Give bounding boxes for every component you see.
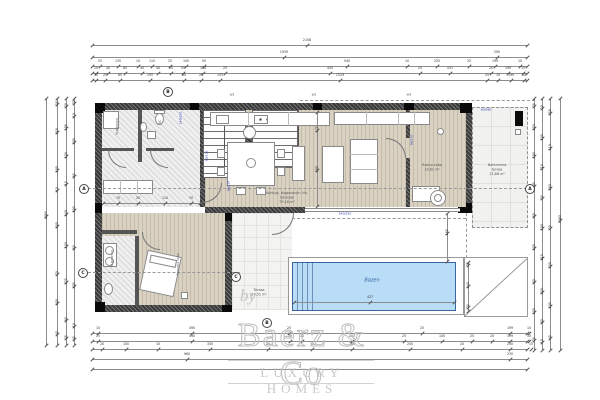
counter-divider (288, 112, 289, 126)
dimension-label: 20 (64, 95, 67, 115)
dimension-tick (558, 348, 562, 352)
dimension-label: 250 (548, 102, 551, 122)
column (222, 305, 232, 312)
dimension-line (92, 369, 527, 370)
dimension-label: 290 (487, 51, 507, 54)
opening-code-label: W2 (302, 94, 326, 97)
dimension-label: 10 (540, 331, 543, 351)
section-marker-c: C (231, 272, 241, 282)
dimension-label: 25 (462, 335, 482, 338)
dimension-label: 25 (394, 335, 414, 338)
dimension-label: 500 (55, 215, 58, 235)
dimension-label: 25 (532, 95, 535, 115)
pool-step-line (307, 262, 308, 311)
swimming-pool (292, 262, 456, 311)
dimension-line (294, 302, 454, 303)
opening-code-label: 80/210 (228, 174, 231, 198)
dimension-label: 190 (55, 159, 58, 179)
terrace-edge-dashed (292, 218, 466, 219)
column (95, 302, 105, 312)
dimension-label: 203 (342, 335, 362, 338)
wall-east (466, 103, 472, 213)
dimension-label: 255 (427, 60, 447, 63)
kitchen-sink (216, 115, 229, 124)
dimension-label: 1939 (274, 51, 294, 54)
dimension-label: 25 (90, 60, 110, 63)
dimension-label: 240 (64, 203, 67, 223)
dimension-label: 175 (315, 119, 318, 139)
dimension-label: 1060 (558, 209, 561, 229)
dimension-label: 150 (116, 343, 136, 346)
dimension-label: 100 (432, 335, 452, 338)
dimension-label: 680 (548, 177, 551, 197)
room-label: Terasa24,51 m² (247, 288, 272, 297)
dimension-label: 25 (548, 217, 551, 237)
dimension-label: 110 (548, 137, 551, 157)
dimension-label: 445 (320, 67, 340, 70)
dimension-label: 490 (182, 335, 202, 338)
dimension-label: 540 (337, 60, 357, 63)
chair (277, 149, 285, 158)
roof-dashed-line (300, 100, 535, 101)
sofa (350, 139, 378, 184)
sofa-cushion-line (350, 154, 378, 155)
dimension-label: 20 (452, 343, 472, 346)
dimension-label: 70 (181, 197, 201, 200)
dimension-line (92, 80, 527, 81)
dimension-tick (525, 367, 529, 371)
dimension-label: 25 (258, 343, 278, 346)
bidet (140, 122, 147, 132)
section-marker-b: B (163, 87, 173, 97)
sofa (322, 146, 344, 183)
dimension-label: 100 (540, 217, 543, 237)
opening-code-label: 90/210 (411, 128, 414, 152)
dimension-label: 960 (177, 353, 197, 356)
nightstand (181, 292, 188, 299)
dimension-label: 10 (55, 179, 58, 199)
dimension-label: 25 (466, 254, 469, 274)
dimension-label: 25 (532, 329, 535, 349)
column (225, 213, 232, 221)
column (404, 103, 414, 110)
hall-cabinet (103, 180, 153, 194)
section-marker-a: A (79, 184, 89, 194)
cabinet-divider (398, 112, 399, 125)
dimension-label: 198 (64, 117, 67, 137)
dimension-label: 330 (200, 343, 220, 346)
cabinet-divider (414, 112, 415, 125)
dimension-label: 10 (292, 335, 312, 338)
dimension-label: 25 (215, 67, 235, 70)
dimension-line (92, 45, 527, 46)
dimension-label: 290 (315, 159, 318, 179)
dimension-label: 2108 (297, 39, 317, 42)
dimension-label: 25 (64, 327, 67, 347)
dimension-label: 500 (532, 237, 535, 257)
dimension-label: 405 (72, 275, 75, 295)
dimension-label: 490 (182, 327, 202, 330)
terrace-accessory (515, 129, 521, 135)
dimension-label: 710 (540, 157, 543, 177)
dimension-label: 10 (397, 60, 417, 63)
cabinet-divider (120, 180, 121, 194)
sofa-cushion-line (350, 169, 378, 170)
watermark-rule-top (228, 360, 374, 361)
section-marker-b: B (262, 318, 272, 328)
pool-step-line (312, 262, 313, 311)
dimension-label: 55 (173, 67, 193, 70)
dimension-label: 15 (513, 67, 533, 70)
dimension-label: 130 (64, 235, 67, 255)
dimension-label: 25 (540, 187, 543, 207)
kitchen-island (292, 146, 305, 181)
pendant-lamp (243, 126, 256, 139)
dimension-label: 400 (532, 301, 535, 321)
dimension-tick (525, 357, 529, 361)
dimension-label: 110 (142, 60, 162, 63)
dimension-label: 100 (176, 60, 196, 63)
dimension-label: 230 (500, 343, 520, 346)
dimension-tick (44, 343, 48, 347)
dimension-label: 25 (466, 296, 469, 316)
pool-step-line (297, 262, 298, 311)
pool-step-line (302, 262, 303, 311)
dimension-label: 199 (485, 60, 505, 63)
dimension-label: 550 (548, 255, 551, 275)
dimension-label: 25 (459, 60, 479, 63)
dimension-label: 15 (521, 343, 541, 346)
dimension-label: 150 (540, 127, 543, 147)
counter-divider (248, 112, 249, 126)
opening-code-label: W1 (220, 94, 244, 97)
room-label: Radna soba13,81 m² (417, 163, 447, 172)
wall-south-wing (95, 305, 232, 312)
dimension-label: 70 (55, 263, 58, 283)
dimension-label: 60 (110, 74, 130, 77)
room-label-vertical: Kupaonica (115, 114, 118, 138)
watermark-rule-bottom (228, 383, 374, 384)
section-marker-c: C (78, 268, 88, 278)
dimension-label: 300 (540, 281, 543, 301)
dimension-label: 400 (55, 292, 58, 312)
washbasin (147, 131, 156, 139)
column (458, 207, 472, 213)
dimension-label: 60 (64, 309, 67, 329)
room-label: Kuhinja, blagovanje i dn. boravak79,18 m… (262, 191, 312, 204)
dimension-label: 10 (148, 343, 168, 346)
section-line-a (88, 188, 532, 189)
wall-lower-bath-top (102, 230, 137, 234)
dimension-label: 155 (210, 74, 230, 77)
window-south-glazing (305, 208, 460, 212)
dimension-label: 10 (72, 105, 75, 125)
dimension-label: 150 (193, 67, 213, 70)
dimension-label: 20 (540, 97, 543, 117)
dimension-label: 10 (88, 327, 108, 330)
dimension-label: 20 (128, 197, 148, 200)
dimension-label: 15 (64, 173, 67, 193)
dimension-label: 427 (360, 296, 380, 299)
dimension-label: 10 (514, 74, 534, 77)
dimension-label: 255 (140, 74, 160, 77)
dimension-label: 250 (400, 343, 420, 346)
dimension-label: 210 (540, 247, 543, 267)
floor-plan-canvas: by Baerz & Co LUXURY HOMES 2108193929025… (0, 0, 600, 400)
section-marker-a: A (525, 184, 535, 194)
dimension-label: 199 (500, 327, 520, 330)
column (190, 103, 199, 110)
wall-north (95, 103, 472, 110)
room-label: Bazen (357, 277, 387, 284)
wall-bedroom-east (225, 213, 232, 312)
dimension-label: 20 (92, 343, 112, 346)
table-centerpiece (246, 158, 256, 168)
cabinet-divider (137, 180, 138, 194)
dimension-tick (548, 348, 552, 352)
wall-lower-bath-partition (135, 236, 139, 305)
dimension-label: 25 (412, 327, 432, 330)
dimension-label: 25 (279, 327, 299, 330)
opening-code-label: 60/060 (474, 109, 498, 112)
opening-code-label: 90/210 (206, 144, 209, 168)
room-label-vertical: Kupaonica (110, 246, 113, 270)
bed-pillow (149, 255, 177, 268)
dimension-label: 45 (72, 328, 75, 348)
dimension-tick (55, 343, 59, 347)
dimension-label: 20 (482, 335, 502, 338)
dimension-label: 250 (55, 121, 58, 141)
dimension-label: 25 (88, 335, 108, 338)
toilet (104, 283, 113, 295)
section-line-c (88, 272, 240, 273)
dimension-label: 45 (55, 323, 58, 343)
opening-code-label: W3 (397, 94, 421, 97)
cooktop (254, 115, 268, 124)
opening-code-label: 540/250 (333, 213, 357, 216)
dimension-label: 1529 (330, 74, 350, 77)
dimension-label: 10 (302, 343, 322, 346)
chair (217, 149, 225, 158)
kitchen-tall-cabinets (334, 112, 430, 125)
dimension-label: 190 (532, 145, 535, 165)
dimension-label: 135 (108, 60, 128, 63)
dimension-label: 375 (64, 271, 67, 291)
room-label-vertical: WC (158, 110, 161, 134)
watermark-brand: Baerz & Co (212, 317, 392, 393)
dimension-label: 50 (532, 205, 535, 225)
dimension-label: 110 (155, 197, 175, 200)
terrace-edge-dashed-v (466, 213, 467, 258)
dimension-label: 25 (55, 93, 58, 113)
column (460, 103, 472, 113)
dimension-label: 25 (410, 67, 430, 70)
dimension-label: 50 (194, 60, 214, 63)
dimension-label: 100 (548, 295, 551, 315)
dimension-label: 240 (466, 275, 469, 295)
dimension-label: 50 (532, 271, 535, 291)
dimension-label: 255 (342, 343, 362, 346)
dimension-label: 165 (445, 222, 448, 242)
dimension-label: 531 (440, 67, 460, 70)
ceiling-fixture (437, 128, 444, 135)
plant-inner (434, 194, 442, 202)
column (313, 103, 322, 110)
fireplace-block (515, 111, 523, 126)
dimension-label: 100 (64, 145, 67, 165)
dimension-label: 1085 (44, 205, 47, 225)
dimension-label: 10 (510, 60, 530, 63)
wall-study-south (406, 158, 410, 207)
dimension-label: 10 (519, 335, 539, 338)
dimension-line (92, 57, 527, 58)
chair (217, 167, 225, 176)
dimension-label: 45 (548, 327, 551, 347)
chair (277, 167, 285, 176)
dimension-label: 205 (72, 131, 75, 151)
dimension-label: 50 (540, 311, 543, 331)
dimension-label: 50 (72, 237, 75, 257)
room-label-vertical: Spavaća soba (176, 252, 179, 276)
dimension-label: 70 (108, 197, 128, 200)
dimension-label: 500 (72, 199, 75, 219)
dimension-label: 85 (72, 165, 75, 185)
opening-code-label: 240/250 (180, 106, 183, 130)
dimension-tick (525, 43, 529, 47)
dimension-label: 25 (191, 74, 211, 77)
dimension-label: 230 (500, 353, 520, 356)
cabinet-divider (366, 112, 367, 125)
dimension-label: 15 (519, 327, 539, 330)
room-label: Natkrivena terasa13,88 m² (482, 163, 512, 176)
dimension-label: 250 (532, 117, 535, 137)
wall-wc-partition (138, 110, 142, 162)
dimension-label: 199 (500, 335, 520, 338)
